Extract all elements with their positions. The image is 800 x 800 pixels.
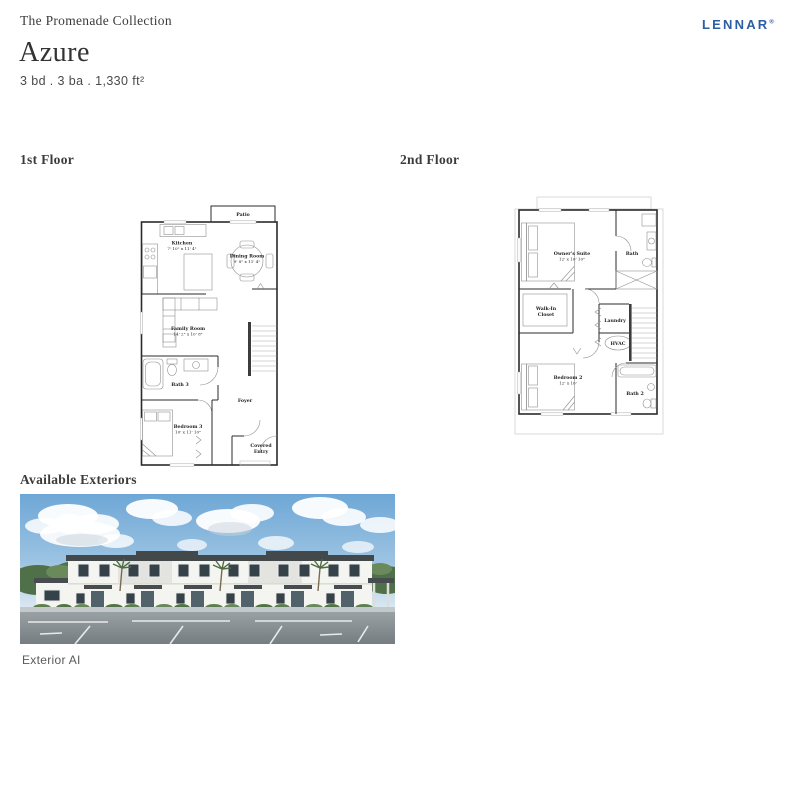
kitchen-dims: 7' 10" x 11' 4" [167,246,196,251]
first-floor-plan: Patio Kitchen 7' 10" x 11' 4" [140,204,280,468]
family-room-area: Family Room 14' 2" x 10' 8" [163,298,217,347]
bath-3-area: Bath 3 [143,359,208,389]
parking-lot [20,607,395,644]
first-floor-heading: 1st Floor [20,152,74,168]
bedroom-3-area: Bedroom 3 10' x 11' 10" [143,410,203,458]
walk-in-closet-area: Walk-In Closet [523,294,567,326]
lennar-logo-text: LENNAR [702,17,769,32]
kitchen-area: Kitchen 7' 10" x 11' 4" [143,225,213,295]
bedroom-2-dims: 12' x 10' [559,381,577,386]
dining-room-area: Dining Room 9' 8" x 11' 4" [227,241,273,281]
laundry-area: Laundry [595,308,626,329]
bedroom-3-dims: 10' x 11' 10" [175,430,201,435]
walk-in-closet-label-line1: Walk-In [535,306,557,312]
laundry-label: Laundry [604,318,626,324]
patio-area: Patio [211,206,275,222]
bath-2-label: Bath 2 [626,391,643,397]
owners-suite-dims: 12' x 10' 10" [559,257,585,262]
stairs [629,304,657,361]
foyer-label: Foyer [238,398,253,404]
covered-entry-area: Covered Entry [232,420,277,465]
family-room-dims: 14' 2" x 10' 8" [173,332,202,337]
hvac-label: HVAC [610,341,625,347]
townhomes [33,551,394,612]
dining-room-dims: 9' 8" x 11' 4" [234,259,261,264]
interior-walls [142,284,278,466]
bedroom-2-area: Bedroom 2 12' x 10' [522,348,583,410]
plan-specs: 3 bd . 3 ba . 1,330 ft² [20,74,145,88]
covered-entry-label-line2: Entry [254,449,269,455]
exterior-walls [519,210,657,414]
exterior-photo [20,494,395,644]
bath-2-area: Bath 2 [618,365,656,408]
exterior-caption: Exterior AI [22,653,81,667]
lennar-logo: LENNAR® [702,17,774,32]
second-floor-plan: Owner's Suite 12' x 10' 10" Bath [511,196,669,436]
registered-mark: ® [769,20,773,26]
hvac-area: HVAC [595,336,631,350]
second-floor-heading: 2nd Floor [400,152,459,168]
covered-entry-label-line1: Covered [250,443,272,449]
patio-label: Patio [236,212,250,218]
owners-suite-area: Owner's Suite 12' x 10' 10" [522,223,591,281]
available-exteriors-heading: Available Exteriors [20,472,137,488]
stairs [248,322,277,376]
brochure-page: The Promenade Collection LENNAR® Azure 3… [0,0,800,800]
bath-area: Bath [616,210,657,289]
collection-name: The Promenade Collection [20,13,172,29]
walk-in-closet-label-line2: Closet [538,312,555,318]
plan-title: Azure [19,37,90,69]
bath-label: Bath [626,251,639,257]
bath-3-label: Bath 3 [171,382,188,388]
